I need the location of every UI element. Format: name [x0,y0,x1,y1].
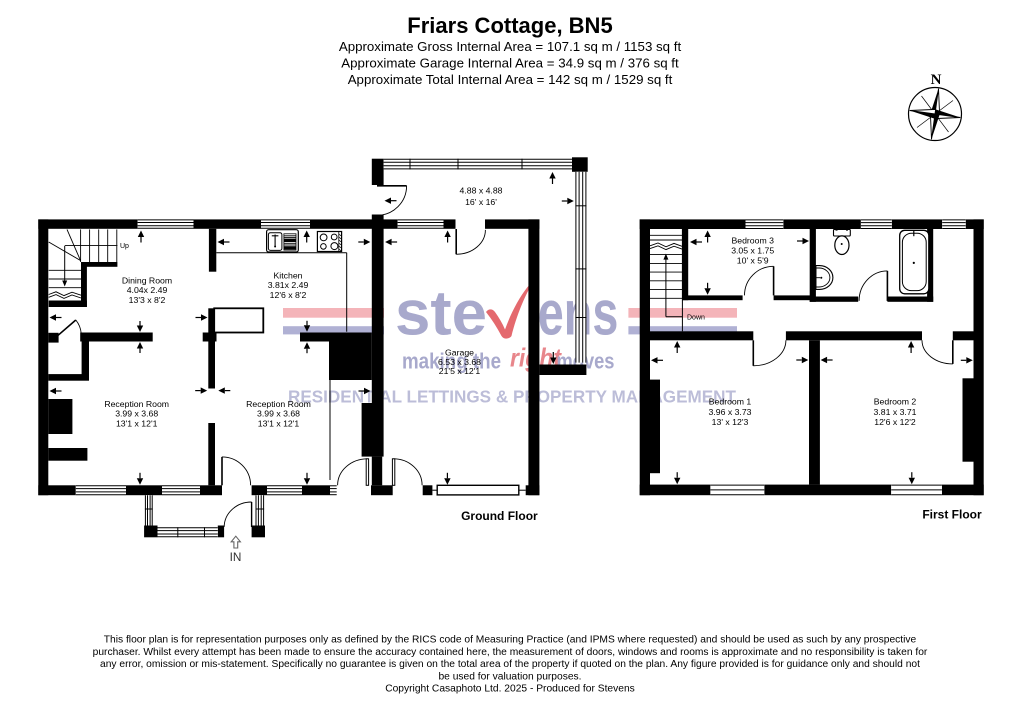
svg-text:3.05 x 1.75: 3.05 x 1.75 [731,246,774,256]
svg-text:Copyright Casaphoto Ltd. 2025: Copyright Casaphoto Ltd. 2025 - Produced… [385,684,635,695]
svg-text:3.96 x 3.73: 3.96 x 3.73 [709,407,752,417]
svg-text:IN: IN [230,550,242,564]
svg-text:Garage: Garage [445,348,474,358]
svg-text:Dining Room: Dining Room [122,276,172,286]
svg-text:4.04x 2.49: 4.04x 2.49 [127,285,168,295]
svg-text:RESIDENTIAL LETTINGS & PROPERT: RESIDENTIAL LETTINGS & PROPERTY MANAGEME… [288,387,736,407]
svg-text:First Floor: First Floor [922,508,982,522]
svg-text:N: N [931,72,942,88]
svg-text:13'1 x 12'1: 13'1 x 12'1 [258,418,300,428]
svg-text:purchaser. Whilst every attemp: purchaser. Whilst every attempt has been… [93,647,928,658]
svg-text:12'6 x 8'2: 12'6 x 8'2 [270,290,307,300]
svg-text:Friars Cottage, BN5: Friars Cottage, BN5 [407,13,612,38]
svg-text:13'3 x 8'2: 13'3 x 8'2 [129,295,166,305]
svg-text:Reception Room: Reception Room [104,399,169,409]
svg-text:Up: Up [120,243,129,250]
svg-text:Down: Down [687,315,705,322]
svg-text:This floor plan is for represe: This floor plan is for representation pu… [104,635,917,646]
svg-text:4.88 x 4.88: 4.88 x 4.88 [460,186,503,196]
svg-text:Bedroom 1: Bedroom 1 [709,397,752,407]
svg-text:Reception Room: Reception Room [246,399,311,409]
svg-text:Bedroom 3: Bedroom 3 [731,236,774,246]
svg-text:3.81 x 3.71: 3.81 x 3.71 [874,407,917,417]
svg-text:ste: ste [395,279,487,349]
svg-text:21'5 x 12'1: 21'5 x 12'1 [439,366,481,376]
svg-text:any error, omission or mis-sta: any error, omission or mis-statement. Sp… [100,659,920,670]
svg-text:13'1 x 12'1: 13'1 x 12'1 [116,418,158,428]
svg-text:be used for valuation purposes: be used for valuation purposes. [438,671,581,682]
svg-text:Approximate Garage Internal Ar: Approximate Garage Internal Area = 34.9 … [341,56,679,71]
svg-text:3.81x 2.49: 3.81x 2.49 [268,280,309,290]
svg-text:3.99 x 3.68: 3.99 x 3.68 [257,409,300,419]
svg-text:3.99 x 3.68: 3.99 x 3.68 [115,409,158,419]
svg-text:Approximate Total Internal Are: Approximate Total Internal Area = 142 sq… [348,72,673,87]
svg-text:Ground Floor: Ground Floor [461,509,538,523]
svg-text:Approximate Gross Internal Are: Approximate Gross Internal Area = 107.1 … [339,39,682,54]
svg-text:Kitchen: Kitchen [274,271,303,281]
svg-text:12'6 x 12'2: 12'6 x 12'2 [874,417,916,427]
svg-text:Bedroom 2: Bedroom 2 [874,397,917,407]
svg-text:16' x 16': 16' x 16' [465,197,497,207]
svg-text:13' x 12'3: 13' x 12'3 [712,417,749,427]
svg-text:10' x 5'9: 10' x 5'9 [737,255,769,265]
